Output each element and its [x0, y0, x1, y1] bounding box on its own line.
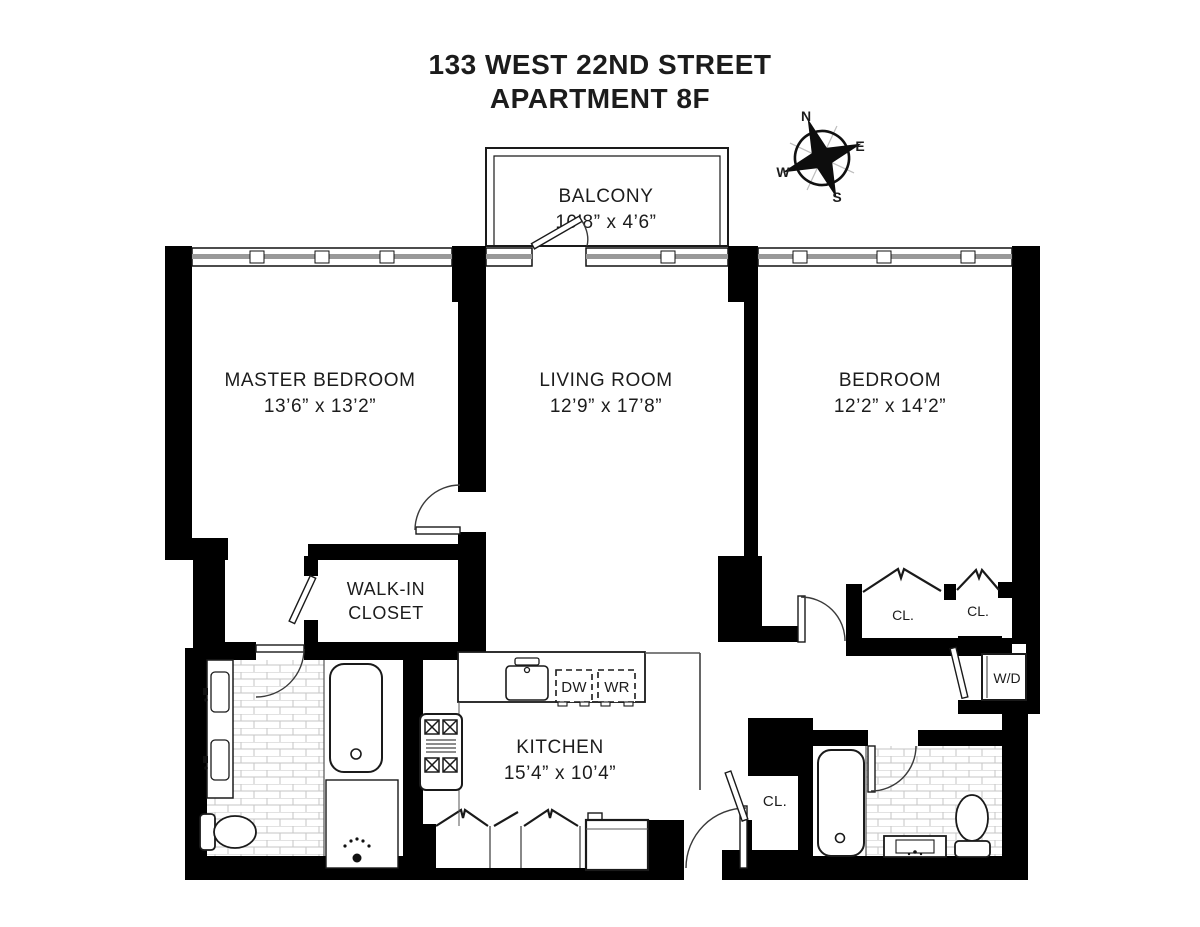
floor-plan-canvas: 133 WEST 22ND STREET APARTMENT 8F N E S … [0, 0, 1200, 927]
sink-icon [884, 836, 946, 857]
stove-icon [420, 714, 462, 790]
walk-in-closet-label-line1: WALK-IN [347, 579, 426, 599]
refrigerator-icon [586, 813, 648, 870]
window-icon [586, 248, 728, 266]
bifold-door-icon [436, 810, 580, 868]
toilet-icon [200, 814, 256, 850]
washer-box: WR [598, 670, 635, 706]
walk-in-closet-label-line2: CLOSET [348, 603, 424, 623]
windows [192, 248, 1012, 266]
window-icon [192, 248, 452, 266]
master-bedroom-dims: 13’6” x 13’2” [264, 396, 376, 417]
door-swing-icon [798, 596, 845, 642]
bedroom-dims: 12’2” x 14’2” [834, 396, 946, 417]
door-swing-icon [289, 576, 316, 624]
toilet-icon [955, 795, 990, 857]
washer-label: WR [604, 679, 630, 696]
bathtub-icon [330, 664, 382, 772]
master-bedroom-label: MASTER BEDROOM [224, 370, 415, 391]
balcony: BALCONY 10’8” x 4’6” [486, 148, 728, 246]
window-icon [758, 248, 1012, 266]
bedroom-label: BEDROOM [839, 370, 941, 391]
dishwasher-box: DW [556, 670, 592, 706]
compass-north-label: N [801, 108, 811, 124]
door-swing-icon [725, 771, 748, 821]
plan-title-line1: 133 WEST 22ND STREET [429, 49, 772, 80]
double-sink-icon [203, 660, 233, 798]
bedroom-closet-right-label: CL. [967, 603, 989, 619]
kitchen-dims: 15’4” x 10’4” [504, 763, 616, 784]
plan-title-line2: APARTMENT 8F [490, 83, 710, 114]
living-room-label: LIVING ROOM [539, 370, 672, 391]
bifold-door-icon [957, 570, 999, 590]
window-icon [486, 248, 532, 266]
compass-south-label: S [832, 189, 841, 205]
washer-dryer-icon: W/D [982, 654, 1026, 700]
bathtub-icon [818, 750, 864, 856]
compass-west-label: W [776, 164, 790, 180]
washer-dryer-label: W/D [993, 670, 1020, 686]
balcony-label: BALCONY [558, 186, 653, 207]
floor-plan-page: 133 WEST 22ND STREET APARTMENT 8F N E S … [0, 0, 1200, 927]
dishwasher-label: DW [561, 679, 587, 696]
kitchen-label: KITCHEN [516, 737, 604, 758]
hall-closet-label: CL. [763, 793, 787, 810]
compass-rose-icon: N E S W [768, 104, 876, 212]
door-swing-icon [415, 485, 460, 534]
bifold-door-icon [863, 569, 941, 592]
compass-east-label: E [855, 138, 864, 154]
shower-icon [326, 780, 398, 868]
living-room-dims: 12’9” x 17’8” [550, 396, 662, 417]
bedroom-closet-left-label: CL. [892, 607, 914, 623]
